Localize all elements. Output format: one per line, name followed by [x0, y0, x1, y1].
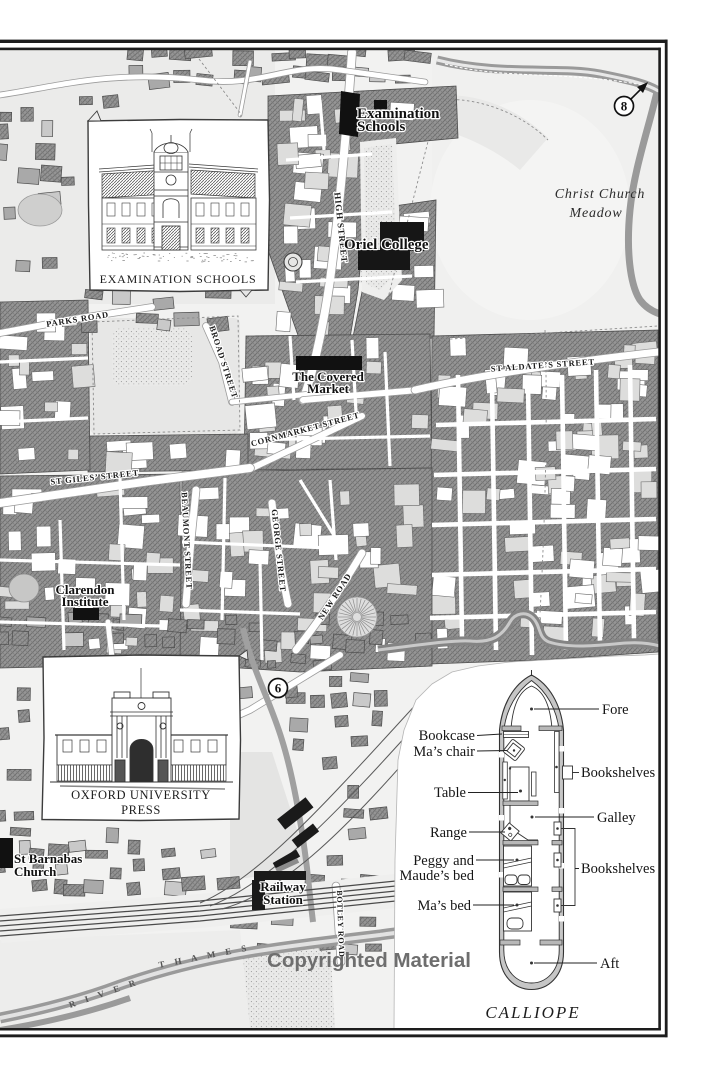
svg-text:Ma’s chair: Ma’s chair — [413, 744, 475, 760]
svg-text:Peggy and: Peggy and — [413, 853, 475, 869]
svg-text:PRESS: PRESS — [121, 803, 161, 817]
svg-text:Oriel College: Oriel College — [344, 237, 429, 253]
svg-text:Bookshelves: Bookshelves — [581, 861, 655, 877]
svg-text:Table: Table — [434, 785, 466, 801]
svg-text:Range: Range — [430, 825, 467, 841]
svg-text:Schools: Schools — [357, 119, 406, 135]
svg-text:Market: Market — [307, 381, 350, 396]
svg-text:Copyrighted Material: Copyrighted Material — [267, 949, 471, 972]
svg-text:OXFORD UNIVERSITY: OXFORD UNIVERSITY — [71, 788, 211, 802]
svg-text:Fore: Fore — [602, 702, 629, 718]
svg-text:Aft: Aft — [600, 956, 619, 972]
svg-text:6: 6 — [275, 681, 282, 696]
svg-text:Galley: Galley — [597, 810, 636, 826]
svg-text:Meadow: Meadow — [568, 206, 622, 221]
svg-text:Church: Church — [14, 864, 57, 879]
svg-text:CALLIOPE: CALLIOPE — [485, 1003, 580, 1022]
svg-text:Ma’s bed: Ma’s bed — [417, 898, 471, 914]
svg-text:Christ Church: Christ Church — [555, 187, 645, 202]
svg-text:Bookcase: Bookcase — [419, 728, 475, 744]
svg-text:Institute: Institute — [62, 594, 109, 609]
svg-text:Maude’s bed: Maude’s bed — [400, 868, 475, 884]
svg-text:Station: Station — [263, 892, 304, 907]
svg-text:Bookshelves: Bookshelves — [581, 765, 655, 781]
svg-text:EXAMINATION SCHOOLS: EXAMINATION SCHOOLS — [100, 272, 257, 286]
svg-text:8: 8 — [621, 99, 628, 114]
